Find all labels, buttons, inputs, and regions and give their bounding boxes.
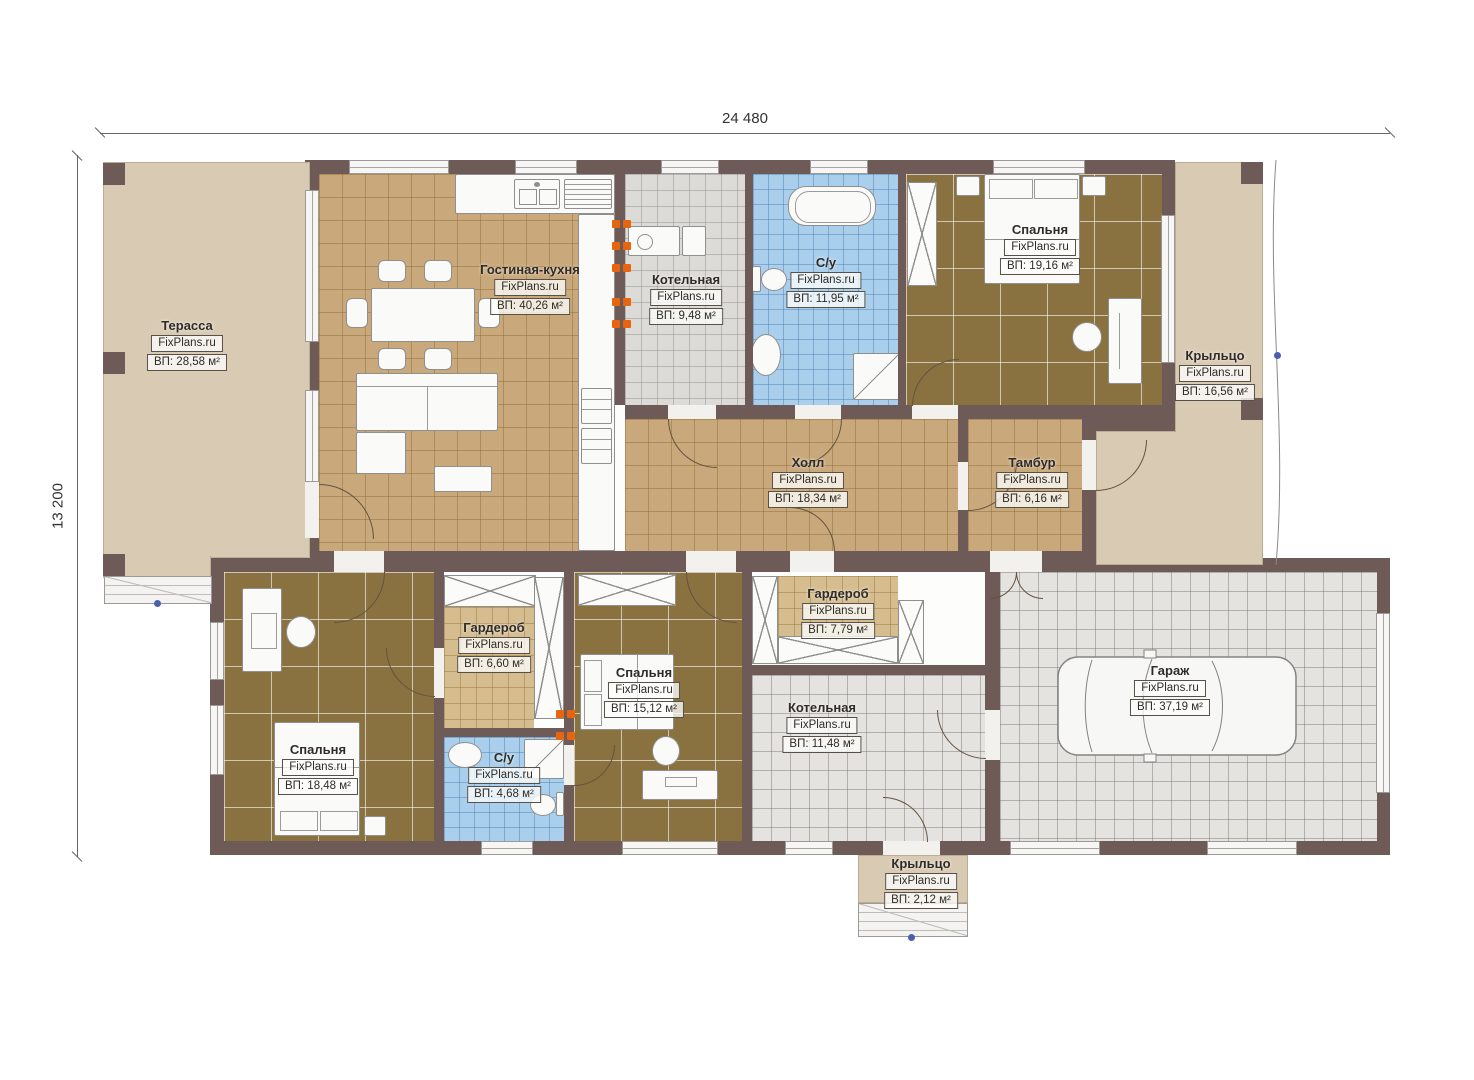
door-opening [883,841,940,855]
room-label-wardrobe-left: Гардероб FixPlans.ru ВП: 6,60 м² [457,620,531,673]
watermark: FixPlans.ru [468,767,540,784]
wardrobe-cabinet [534,577,564,719]
wall [434,572,444,841]
boiler-unit [682,226,706,256]
window [515,160,577,174]
watermark: FixPlans.ru [608,682,680,699]
radiator-icon [612,242,620,250]
room-label-living-kitchen: Гостиная-кухня FixPlans.ru ВП: 40,26 м² [480,262,580,315]
room-label-bathroom-small: С/у FixPlans.ru ВП: 4,68 м² [467,750,541,803]
desk [242,588,282,672]
toilet-bowl [761,268,787,291]
room-area: ВП: 16,56 м² [1175,384,1255,401]
room-area: ВП: 11,48 м² [782,736,861,753]
watermark: FixPlans.ru [458,637,530,654]
room-area: ВП: 6,16 м² [995,491,1069,508]
door-opening [686,551,736,572]
nightstand [364,816,386,836]
door-opening [305,482,319,538]
kitchen-counter-side [578,214,615,551]
room-label-tambour: Тамбур FixPlans.ru ВП: 6,16 м² [995,455,1069,508]
watermark: FixPlans.ru [996,472,1068,489]
door-opening [434,648,444,698]
door-opening [564,745,574,785]
appliance [581,388,612,424]
window [1161,215,1175,363]
room-area: ВП: 28,58 м² [147,354,227,371]
survey-point [908,934,915,941]
room-label-porch-bottom: Крыльцо FixPlans.ru ВП: 2,12 м² [884,856,958,909]
room-label-bathroom-top: С/у FixPlans.ru ВП: 11,95 м² [786,255,865,308]
room-name: Спальня [1012,222,1068,237]
room-area: ВП: 2,12 м² [884,892,958,909]
wardrobe-cabinet [907,182,937,286]
room-name: Спальня [616,665,672,680]
room-label-hall: Холл FixPlans.ru ВП: 18,34 м² [768,455,848,508]
wardrobe-cabinet [578,574,676,606]
office-chair [1072,322,1102,352]
sofa [356,373,498,431]
terrace-pillar [103,163,125,185]
floor-plan-canvas: 24 480 13 200 [0,0,1474,1080]
dimension-line-top [100,133,1390,134]
room-name: Котельная [788,700,856,715]
sofa-chaise [356,432,406,474]
coffee-table [434,466,492,492]
wall [985,572,1000,841]
radiator-icon [612,264,620,272]
wall [898,174,906,419]
door-opening [668,405,716,419]
dining-table [371,288,475,342]
door-opening [1082,440,1096,490]
garage-door-opening [1376,613,1390,793]
window [785,841,833,855]
stove [564,179,612,209]
terrace-pillar [103,352,125,374]
desk [1108,298,1142,384]
room-name: С/у [494,750,514,765]
door-opening [912,405,958,419]
room-name: Терасса [161,318,213,333]
wall [1096,419,1175,431]
dimension-label-width: 24 480 [722,110,768,127]
watermark: FixPlans.ru [802,603,874,620]
chair [346,298,368,328]
window [481,841,533,855]
watermark: FixPlans.ru [790,272,862,289]
wardrobe-cabinet [444,575,536,607]
radiator-icon [612,298,620,306]
window [305,390,319,482]
wardrobe-cabinet [778,636,898,664]
room-area: ВП: 37,19 м² [1130,699,1210,716]
room-name: Гардероб [463,620,524,635]
room-name: С/у [816,255,836,270]
leader-curve [1264,160,1294,565]
door-opening [334,551,384,572]
terrace-pillar [103,554,125,576]
wall [745,174,753,419]
radiator-icon [612,320,620,328]
wardrobe-cabinet [898,600,924,664]
washbasin [751,334,781,376]
watermark: FixPlans.ru [786,717,858,734]
kitchen-sink [514,179,560,209]
wall [752,665,990,675]
watermark: FixPlans.ru [1004,239,1076,256]
room-name: Гостиная-кухня [480,262,580,277]
room-name: Холл [792,455,825,470]
watermark: FixPlans.ru [494,279,566,296]
radiator-icon [556,710,564,718]
room-area: ВП: 40,26 м² [490,298,570,315]
room-label-bedroom-top: Спальня FixPlans.ru ВП: 19,16 м² [1000,222,1080,275]
room-name: Гараж [1151,663,1190,678]
wall [564,572,574,841]
room-name: Тамбур [1008,455,1055,470]
survey-point [154,600,161,607]
watermark: FixPlans.ru [282,759,354,776]
porch-pillar [1241,398,1263,420]
room-area: ВП: 6,60 м² [457,656,531,673]
window [210,622,224,680]
chair [424,348,452,370]
room-label-terrace: Терасса FixPlans.ru ВП: 28,58 м² [147,318,227,371]
room-label-porch-right: Крыльцо FixPlans.ru ВП: 16,56 м² [1175,348,1255,401]
room-area: ВП: 4,68 м² [467,786,541,803]
chair [424,260,452,282]
window [810,160,868,174]
porch-pillar [1241,162,1263,184]
radiator-icon [612,220,620,228]
room-area: ВП: 18,34 м² [768,491,848,508]
wall [444,728,564,737]
wall [615,174,625,405]
survey-point [1274,352,1281,359]
window [210,705,224,775]
dimension-label-height: 13 200 [50,483,67,529]
room-area: ВП: 9,48 м² [649,308,723,325]
wardrobe-cabinet [752,576,778,664]
door-opening [795,405,841,419]
watermark: FixPlans.ru [1134,680,1206,697]
room-label-boiler-bottom: Котельная FixPlans.ru ВП: 11,48 м² [782,700,861,753]
watermark: FixPlans.ru [772,472,844,489]
room-label-bedroom-mid: Спальня FixPlans.ru ВП: 15,12 м² [604,665,684,718]
watermark: FixPlans.ru [1179,365,1251,382]
watermark: FixPlans.ru [650,289,722,306]
door-opening [790,551,834,572]
door-opening [985,710,1000,760]
shower [853,353,900,400]
radiator-icon [556,732,564,740]
chair [378,348,406,370]
door-opening [990,551,1042,572]
room-name: Котельная [652,272,720,287]
bathtub [788,186,876,226]
room-name: Спальня [290,742,346,757]
room-area: ВП: 15,12 м² [604,701,684,718]
room-label-boiler-top: Котельная FixPlans.ru ВП: 9,48 м² [649,272,723,325]
toilet [556,792,564,816]
office-chair [652,736,680,766]
window [1010,841,1100,855]
toilet [752,266,761,292]
chair [378,260,406,282]
room-area: ВП: 11,95 м² [786,291,865,308]
watermark: FixPlans.ru [151,335,223,352]
window [349,160,449,174]
living-kitchen-floor [319,174,615,551]
office-chair [286,616,316,648]
room-label-garage: Гараж FixPlans.ru ВП: 37,19 м² [1130,663,1210,716]
room-name: Гардероб [807,586,868,601]
watermark: FixPlans.ru [885,873,957,890]
boiler-unit [628,226,680,256]
window [622,841,718,855]
room-label-bedroom-left: Спальня FixPlans.ru ВП: 18,48 м² [278,742,358,795]
desk [642,770,718,800]
room-label-wardrobe-mid: Гардероб FixPlans.ru ВП: 7,79 м² [801,586,875,639]
room-name: Крыльцо [1185,348,1244,363]
room-area: ВП: 18,48 м² [278,778,358,795]
room-area: ВП: 19,16 м² [1000,258,1080,275]
window [993,160,1085,174]
window [1207,841,1297,855]
room-area: ВП: 7,79 м² [801,622,875,639]
window [305,190,319,342]
dimension-line-left [77,155,78,857]
nightstand [1082,176,1106,196]
room-name: Крыльцо [891,856,950,871]
window [661,160,719,174]
door-opening [958,462,968,510]
nightstand [956,176,980,196]
appliance [581,428,612,464]
wall [742,572,752,841]
